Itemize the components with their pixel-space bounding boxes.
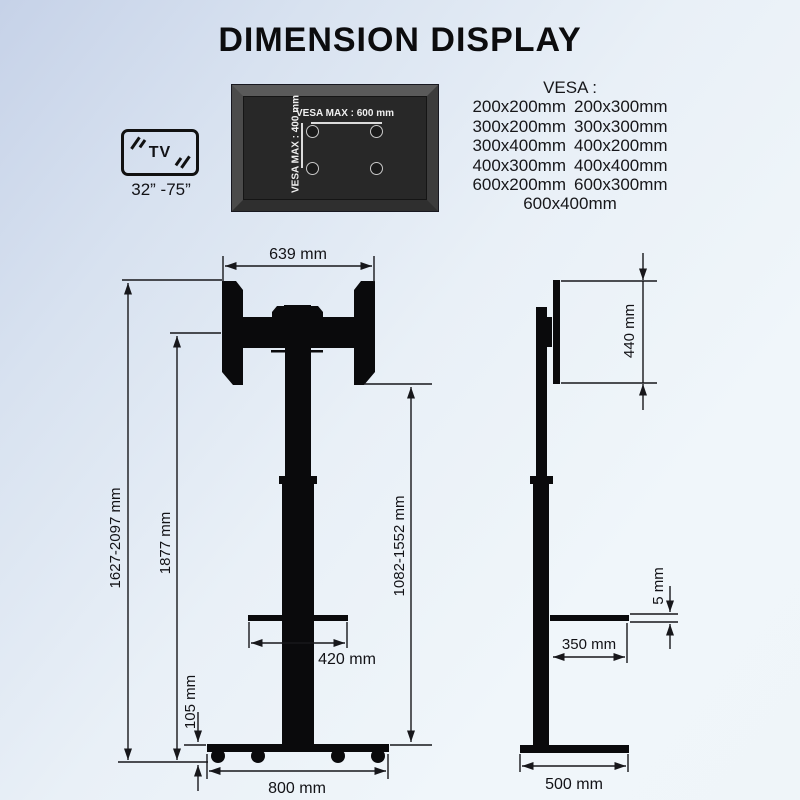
dim-label-shelf-depth: 350 mm [562, 636, 616, 653]
front-shelf [248, 615, 348, 621]
side-shelf [550, 615, 629, 621]
dim-label-panel-height: 440 mm [621, 304, 638, 358]
side-view [520, 280, 629, 753]
caster-wheel [211, 749, 225, 763]
dim-label-total-height: 1627-2097 mm [107, 488, 124, 589]
side-column-upper [536, 307, 547, 477]
front-column-collar [279, 476, 317, 484]
front-base [207, 744, 389, 752]
side-base [520, 745, 629, 753]
dim-label-base-width: 800 mm [268, 780, 326, 797]
front-column-lower [282, 484, 314, 745]
dim-label-column-height: 1877 mm [157, 512, 174, 575]
dim-label-base-depth: 500 mm [545, 776, 603, 793]
dim-label-shelf-width: 420 mm [318, 651, 376, 668]
front-cap-right-tab [311, 306, 323, 317]
dim-label-shelf-thickness: 5 mm [650, 567, 667, 605]
caster-wheel [331, 749, 345, 763]
side-column-collar [530, 476, 553, 484]
dim-label-base-height: 105 mm [182, 675, 199, 729]
caster-wheel [371, 749, 385, 763]
front-mount-cap [284, 305, 311, 318]
side-column-lower [533, 484, 549, 745]
front-view [207, 281, 389, 763]
side-mount-clamp [547, 317, 552, 347]
stand-drawing: 639 mm 1627-2097 mm 1877 mm 1082-1552 mm… [0, 0, 800, 800]
front-crossbar [222, 317, 375, 348]
caster-wheel [251, 749, 265, 763]
dim-label-top-width: 639 mm [269, 246, 327, 263]
front-column-upper [285, 348, 311, 478]
front-cap-left-tab [272, 306, 284, 317]
dimension-display-page: DIMENSION DISPLAY TV 32” -75” VESA MAX :… [0, 0, 800, 800]
dim-label-bracket-height: 1082-1552 mm [391, 496, 408, 597]
side-vesa-panel [553, 280, 560, 384]
